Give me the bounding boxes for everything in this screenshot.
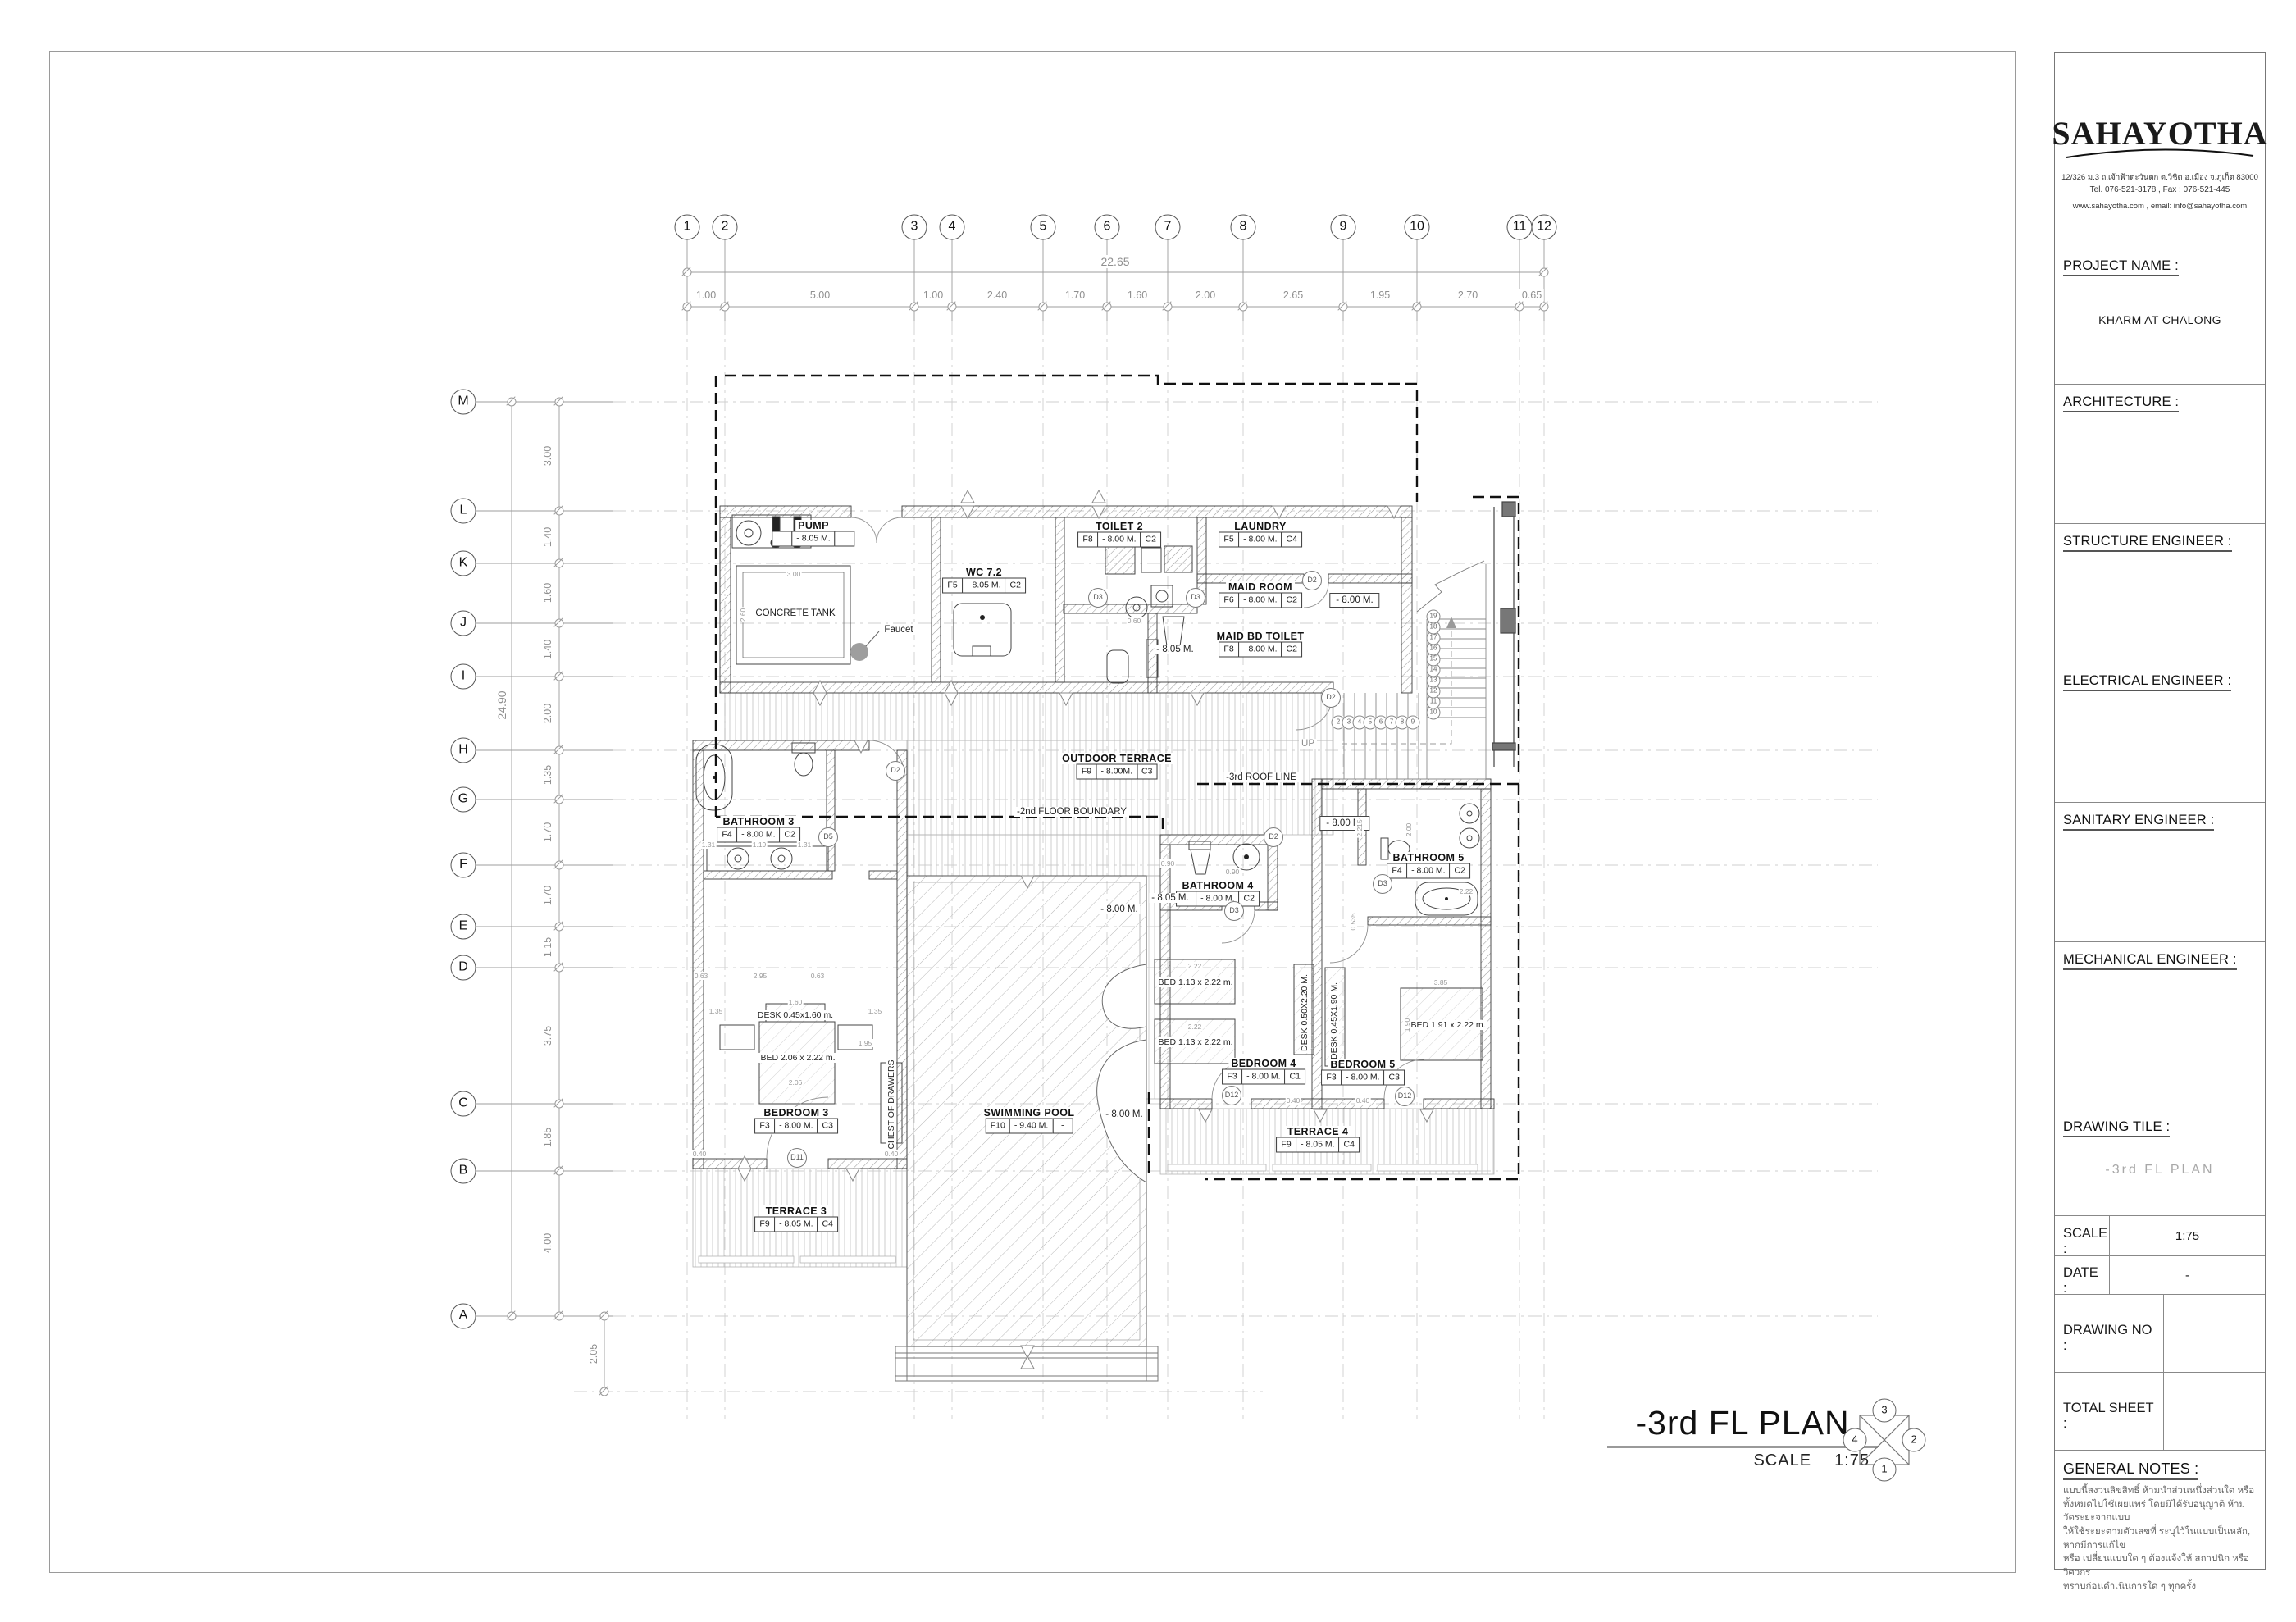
door-tag: D2 <box>1264 827 1283 847</box>
drawing-no-label: DRAWING NO : <box>2055 1295 2163 1372</box>
minor-dim: 1.90 <box>1403 1018 1411 1033</box>
logo-tel: Tel. 076-521-3178 , Fax : 076-521-445 <box>2065 185 2255 198</box>
title-block: SAHAY OTHA 12/326 ม.3 ถ.เจ้าฟ้าตะวันตก ต… <box>2054 52 2266 1570</box>
compass-2: 2 <box>1902 1428 1926 1452</box>
dim-tick <box>555 507 564 516</box>
grid-row-bubble: H <box>451 738 476 763</box>
grid-row-bubble: E <box>451 914 476 940</box>
dim-label: 1.70 <box>542 883 553 908</box>
minor-dim: 2.60 <box>739 608 747 623</box>
room-name: SWIMMING POOL <box>982 1107 1077 1119</box>
dim-tick <box>1515 303 1524 312</box>
minor-dim: 2.22 <box>1187 962 1203 970</box>
drawing-no-value <box>2163 1295 2265 1372</box>
minor-dim: 0.535 <box>1349 912 1357 931</box>
dim-tick <box>508 1312 517 1321</box>
grid-row-bubble: C <box>451 1091 476 1117</box>
room-tag-cell: - 8.00 M. <box>1341 1070 1384 1086</box>
dim-tick <box>1164 303 1173 312</box>
overall-width-dim: 22.65 <box>1098 255 1132 268</box>
room-tag: F8- 8.00 M.C2 <box>1219 642 1302 658</box>
plan-title-block: -3rd FL PLAN SCALE1:75 <box>1607 1404 1878 1470</box>
dim-label: 1.70 <box>542 820 553 845</box>
compass-4: 4 <box>1843 1428 1867 1452</box>
room-tag: F8- 8.00 M.C2 <box>1077 532 1161 548</box>
dim-tick <box>555 861 564 870</box>
dim-tick <box>1039 303 1048 312</box>
room-name: MAID BD TOILET <box>1214 631 1307 642</box>
minor-dim: 1.60 <box>788 998 804 1006</box>
annotation: - 8.05 M. <box>1149 893 1191 903</box>
room-tag-cell: F8 <box>1219 642 1239 658</box>
row-date: DATE : - <box>2055 1256 2265 1295</box>
room-tag-cell <box>772 531 792 547</box>
structure-label: STRUCTURE ENGINEER : <box>2063 534 2232 552</box>
grid-row-bubble: F <box>451 853 476 878</box>
grid-row-bubble: B <box>451 1159 476 1184</box>
grid-row-bubble: K <box>451 551 476 576</box>
scale-label: SCALE : <box>2055 1216 2109 1255</box>
stair-number: 19 <box>1427 610 1441 624</box>
grid-col-bubble: 1 <box>675 215 700 240</box>
room-tag-cell: - 8.00 M. <box>774 1119 818 1134</box>
section-structure: STRUCTURE ENGINEER : <box>2055 524 2265 663</box>
dim-tick <box>555 795 564 804</box>
dim-label: 1.00 <box>921 289 945 301</box>
dim-label: 1.60 <box>542 581 553 605</box>
dim-tick <box>555 559 564 568</box>
annotation: - 8.00 M. <box>1329 593 1379 608</box>
drawing-tile-label: DRAWING TILE : <box>2063 1119 2170 1137</box>
room-tag-cell: C2 <box>1282 642 1302 658</box>
room-tag-cell: F9 <box>1077 764 1097 780</box>
dim-label: 1.40 <box>542 637 553 662</box>
section-drawing-tile: DRAWING TILE : -3rd FL PLAN <box>2055 1109 2265 1216</box>
room-tag-cell: C3 <box>1137 764 1157 780</box>
room-tag-cell: - 8.05 M. <box>962 578 1005 594</box>
general-notes-line: หรือ เปลี่ยนแบบใด ๆ ต้องแจ้งให้ สถาปนิก … <box>2063 1552 2257 1579</box>
room-tag: F9- 8.00M.C3 <box>1077 764 1158 780</box>
dim-tick <box>1103 303 1112 312</box>
room-tag: F3- 8.00 M.C1 <box>1222 1069 1305 1085</box>
dim-label: 0.65 <box>1519 289 1544 301</box>
plan-labels: 123456789101112MLKJIHGFEDCBA1.005.001.00… <box>0 0 2296 1622</box>
room-name: BEDROOM 3 <box>761 1107 831 1119</box>
dim-tick <box>555 964 564 973</box>
furniture-label: DESK 0.45X1.90 M. <box>1329 981 1339 1061</box>
row-total-sheet: TOTAL SHEET : <box>2055 1373 2265 1451</box>
section-general-notes: GENERAL NOTES : แบบนี้สงวนลิขสิทธิ์ ห้าม… <box>2055 1451 2265 1570</box>
room-name: PUMP <box>795 520 831 531</box>
room-tag-cell: - 8.00 M. <box>1241 1069 1285 1085</box>
room-tag-cell: - 8.00 M. <box>1238 532 1282 548</box>
room-name: LAUNDRY <box>1232 521 1288 532</box>
grid-col-bubble: 3 <box>902 215 927 240</box>
room-name: BATHROOM 4 <box>1179 880 1255 891</box>
room-tag: F9- 8.05 M.C4 <box>754 1217 838 1232</box>
room-tag-cell: - 8.00 M. <box>1406 863 1450 879</box>
door-tag: D3 <box>1224 901 1244 921</box>
room-tag-cell: C4 <box>818 1217 838 1232</box>
room-name: WC 7.2 <box>963 567 1004 578</box>
dim-label: 5.00 <box>808 289 832 301</box>
furniture-label: DESK 0.50X2.20 M. <box>1300 973 1310 1053</box>
room-tag: F10- 9.40 M.- <box>986 1119 1073 1134</box>
date-value: - <box>2109 1256 2265 1294</box>
general-notes-line: แบบนี้สงวนลิขสิทธิ์ ห้ามนำส่วนหนึ่งส่วนใ… <box>2063 1484 2257 1498</box>
minor-dim: 0.63 <box>694 972 709 980</box>
minor-dim: 2.22 <box>1187 1023 1203 1031</box>
general-notes-line: ทั้งหมดไปใช้เผยแพร่ โดยมิได้รับอนุญาติ ห… <box>2063 1498 2257 1525</box>
minor-dim: 0.40 <box>884 1150 900 1158</box>
room-tag-cell: F9 <box>1276 1137 1296 1153</box>
room-tag-cell: C1 <box>1285 1069 1305 1085</box>
annotation: Faucet <box>881 625 915 635</box>
minor-dim: 1.95 <box>858 1039 873 1047</box>
minor-dim: 1.35 <box>868 1007 883 1015</box>
grid-col-bubble: 7 <box>1155 215 1181 240</box>
total-sheet-value <box>2163 1373 2265 1450</box>
dim-label: 1.35 <box>542 763 553 787</box>
dim-label: 1.40 <box>542 525 553 549</box>
annotation: -3rd ROOF LINE <box>1223 772 1299 782</box>
dim-tick <box>1239 303 1248 312</box>
room-tag-cell: C2 <box>1450 863 1470 879</box>
section-project-name: PROJECT NAME : KHARM AT CHALONG <box>2055 248 2265 385</box>
furniture-label: CHEST OF DRAWERS <box>886 1058 896 1150</box>
minor-dim: 1.31 <box>701 841 717 849</box>
grid-row-bubble: G <box>451 787 476 813</box>
annotation: -2nd FLOOR BOUNDARY <box>1014 807 1129 817</box>
row-drawing-no: DRAWING NO : <box>2055 1295 2265 1373</box>
date-label: DATE : <box>2055 1256 2109 1294</box>
row-scale: SCALE : 1:75 <box>2055 1216 2265 1256</box>
dim-tick <box>555 619 564 628</box>
grid-col-bubble: 2 <box>713 215 738 240</box>
dim-tick <box>600 1387 609 1396</box>
minor-dim: 2.06 <box>788 1078 804 1087</box>
minor-dim: 2.00 <box>1405 822 1413 838</box>
minor-dim: 0.60 <box>1127 617 1142 625</box>
dim-tick <box>910 303 919 312</box>
minor-dim: 1.31 <box>797 841 813 849</box>
logo-web: www.sahayotha.com , email: info@sahayoth… <box>2055 202 2265 211</box>
company-logo: SAHAY OTHA 12/326 ม.3 ถ.เจ้าฟ้าตะวันตก ต… <box>2055 53 2265 248</box>
room-tag: F5- 8.05 M.C2 <box>942 578 1026 594</box>
minor-dim: 2.95 <box>753 972 768 980</box>
dim-label: 2.40 <box>985 289 1009 301</box>
door-tag: D3 <box>1088 588 1108 608</box>
dim-tick <box>555 672 564 681</box>
room-name: BATHROOM 3 <box>720 816 796 827</box>
dim-tick <box>555 1100 564 1109</box>
furniture-label: BED 1.91 x 2.22 m. <box>1409 1020 1487 1030</box>
general-notes-label: GENERAL NOTES : <box>2063 1460 2198 1480</box>
room-tag-cell: F10 <box>986 1119 1010 1134</box>
dim-tick <box>555 1312 564 1321</box>
door-tag: D2 <box>886 761 905 781</box>
overall-height-dim: 24.90 <box>495 688 508 722</box>
dim-label: 1.95 <box>1368 289 1392 301</box>
section-mechanical: MECHANICAL ENGINEER : <box>2055 942 2265 1109</box>
grid-row-bubble: I <box>451 664 476 690</box>
annotation: - 8.00 M. <box>1098 904 1140 914</box>
room-name: MAID ROOM <box>1226 581 1295 593</box>
furniture-label: BED 1.13 x 2.22 m. <box>1156 977 1234 987</box>
room-tag-cell: - <box>1052 1119 1073 1134</box>
dim-label: 2.00 <box>1193 289 1218 301</box>
dim-tick <box>1413 303 1422 312</box>
compass-3: 3 <box>1873 1399 1897 1423</box>
total-sheet-label: TOTAL SHEET : <box>2055 1373 2163 1450</box>
dim-label: 2.00 <box>542 701 553 726</box>
room-tag: - 8.05 M. <box>772 531 854 547</box>
stair-number: 9 <box>1406 716 1420 730</box>
grid-col-bubble: 12 <box>1532 215 1557 240</box>
door-tag: D12 <box>1395 1087 1414 1106</box>
room-tag: F4- 8.00 M.C2 <box>1387 863 1470 879</box>
minor-dim: 0.63 <box>810 972 826 980</box>
room-tag: F5- 8.00 M.C4 <box>1219 532 1302 548</box>
room-tag: F3- 8.00 M.C3 <box>754 1119 838 1134</box>
room-tag-cell: F3 <box>754 1119 775 1134</box>
annotation: - 8.00 M. <box>1103 1109 1145 1119</box>
furniture-label: BED 1.13 x 2.22 m. <box>1156 1037 1234 1047</box>
grid-row-bubble: D <box>451 955 476 981</box>
room-tag-cell: C4 <box>1339 1137 1360 1153</box>
sanitary-label: SANITARY ENGINEER : <box>2063 813 2214 831</box>
dim-tick <box>1540 268 1549 277</box>
room-tag: F3- 8.00 M.C3 <box>1321 1070 1405 1086</box>
dim-label: 1.85 <box>542 1125 553 1150</box>
room-tag: F9- 8.05 M.C4 <box>1276 1137 1360 1153</box>
dim-label: 1.60 <box>1125 289 1150 301</box>
project-name-label: PROJECT NAME : <box>2063 258 2179 276</box>
room-tag-cell: F5 <box>942 578 963 594</box>
room-tag-cell: - 8.00M. <box>1096 764 1138 780</box>
minor-dim: 0.40 <box>1355 1096 1371 1105</box>
room-tag-cell: C4 <box>1282 532 1302 548</box>
room-tag-cell: - 8.00 M. <box>1238 593 1282 608</box>
dim-label: 3.00 <box>542 444 553 468</box>
dim-tick <box>683 268 692 277</box>
minor-dim: 3.00 <box>786 570 802 578</box>
dim-label: 1.70 <box>1063 289 1087 301</box>
section-sanitary: SANITARY ENGINEER : <box>2055 803 2265 942</box>
plan-title: -3rd FL PLAN <box>1607 1404 1878 1448</box>
dim-label: 1.00 <box>694 289 718 301</box>
grid-row-bubble: A <box>451 1304 476 1329</box>
room-name: OUTDOOR TERRACE <box>1059 753 1174 764</box>
minor-dim: 2.215 <box>1355 818 1364 837</box>
furniture-label: DESK 0.45x1.60 m. <box>756 1010 835 1020</box>
architecture-label: ARCHITECTURE : <box>2063 394 2179 412</box>
mechanical-label: MECHANICAL ENGINEER : <box>2063 952 2237 970</box>
room-tag-cell: - 8.00 M. <box>1238 642 1282 658</box>
room-tag-cell: - 8.00 M. <box>1097 532 1141 548</box>
grid-row-bubble: L <box>451 499 476 524</box>
room-tag-cell: F4 <box>717 827 737 843</box>
door-tag: D3 <box>1373 874 1392 894</box>
general-notes-line: ทราบก่อนดำเนินการใด ๆ ทุกครั้ง <box>2063 1580 2257 1594</box>
room-tag: F6- 8.00 M.C2 <box>1219 593 1302 608</box>
extra-dim: 2.05 <box>588 1342 599 1366</box>
grid-row-bubble: J <box>451 611 476 636</box>
dim-label: 4.00 <box>542 1231 553 1255</box>
general-notes-text: แบบนี้สงวนลิขสิทธิ์ ห้ามนำส่วนหนึ่งส่วนใ… <box>2063 1484 2257 1593</box>
general-notes-line: ให้ใช้ระยะตามตัวเลขที่ ระบุไว้ในแบบเป็นห… <box>2063 1525 2257 1552</box>
dim-tick <box>508 398 517 407</box>
plan-scale: SCALE1:75 <box>1607 1451 1878 1470</box>
room-tag-cell: F5 <box>1219 532 1239 548</box>
room-tag-cell: - 8.05 M. <box>774 1217 818 1232</box>
annotation: UP <box>1299 739 1317 749</box>
room-tag-cell: F9 <box>754 1217 775 1232</box>
grid-col-bubble: 9 <box>1331 215 1356 240</box>
room-tag-cell: - 8.05 M. <box>1296 1137 1339 1153</box>
minor-dim: 0.40 <box>692 1150 708 1158</box>
room-tag-cell: C3 <box>1384 1070 1405 1086</box>
annotation: CONCRETE TANK <box>753 608 837 618</box>
logo-address: 12/326 ม.3 ถ.เจ้าฟ้าตะวันตก ต.วิชิต อ.เม… <box>2055 171 2265 184</box>
section-electrical: ELECTRICAL ENGINEER : <box>2055 663 2265 803</box>
electrical-label: ELECTRICAL ENGINEER : <box>2063 673 2231 691</box>
room-name: TERRACE 3 <box>763 1205 829 1217</box>
room-tag-cell: C3 <box>818 1119 838 1134</box>
compass-1: 1 <box>1873 1458 1897 1482</box>
annotation: - 8.05 M. <box>1154 645 1196 654</box>
logo-text-right: OTHA <box>2168 119 2268 148</box>
room-tag-cell: F3 <box>1222 1069 1242 1085</box>
grid-col-bubble: 10 <box>1405 215 1430 240</box>
drawing-tile-value: -3rd FL PLAN <box>2063 1163 2257 1178</box>
dim-tick <box>600 1312 609 1321</box>
room-tag-cell: - 9.40 M. <box>1009 1119 1053 1134</box>
dim-label: 2.65 <box>1281 289 1305 301</box>
room-tag-cell: F4 <box>1387 863 1407 879</box>
dim-tick <box>555 923 564 932</box>
grid-col-bubble: 11 <box>1507 215 1533 240</box>
grid-col-bubble: 4 <box>940 215 965 240</box>
room-tag-cell: F8 <box>1077 532 1098 548</box>
door-tag: D2 <box>1321 688 1341 708</box>
grid-row-bubble: M <box>451 390 476 415</box>
dim-tick <box>683 303 692 312</box>
room-tag-cell: C2 <box>1005 578 1026 594</box>
door-tag: D12 <box>1222 1086 1241 1105</box>
room-name: TOILET 2 <box>1093 521 1146 532</box>
room-name: TERRACE 4 <box>1285 1126 1351 1137</box>
furniture-label: BED 2.06 x 2.22 m. <box>758 1053 836 1063</box>
dim-tick <box>721 303 730 312</box>
room-tag-cell: - 8.05 M. <box>791 531 835 547</box>
minor-dim: 0.40 <box>1286 1096 1301 1105</box>
dim-tick <box>948 303 957 312</box>
door-tag: D11 <box>787 1148 807 1168</box>
plan-scale-label: SCALE <box>1753 1451 1811 1469</box>
dim-label: 2.70 <box>1455 289 1480 301</box>
minor-dim: 3.85 <box>1433 978 1449 986</box>
minor-dim: 0.90 <box>1225 868 1241 876</box>
minor-dim: 0.90 <box>1160 859 1176 868</box>
drawing-sheet: 123456789101112MLKJIHGFEDCBA1.005.001.00… <box>0 0 2296 1622</box>
grid-col-bubble: 6 <box>1095 215 1120 240</box>
room-tag-cell: C2 <box>1282 593 1302 608</box>
dim-label: 1.15 <box>542 935 553 959</box>
room-name: BATHROOM 5 <box>1390 852 1466 863</box>
minor-dim: 1.35 <box>708 1007 724 1015</box>
door-tag: D3 <box>1186 588 1205 608</box>
door-tag: D2 <box>1302 571 1322 590</box>
dim-tick <box>1540 303 1549 312</box>
minor-dim: 2.22 <box>1459 887 1474 895</box>
project-name-value: KHARM AT CHALONG <box>2063 313 2257 326</box>
room-tag-cell: F6 <box>1219 593 1239 608</box>
dim-tick <box>555 746 564 755</box>
room-name: BEDROOM 4 <box>1228 1058 1298 1069</box>
logo-text-left: SAHAY <box>2052 119 2167 148</box>
room-tag-cell: C2 <box>1141 532 1161 548</box>
section-architecture: ARCHITECTURE : <box>2055 385 2265 524</box>
scale-value: 1:75 <box>2109 1216 2265 1255</box>
room-tag-cell: F3 <box>1321 1070 1342 1086</box>
dim-tick <box>555 398 564 407</box>
grid-col-bubble: 5 <box>1031 215 1056 240</box>
dim-tick <box>555 1167 564 1176</box>
dim-label: 3.75 <box>542 1023 553 1048</box>
key-plan-compass: 3 2 1 4 <box>1838 1394 1930 1486</box>
door-tag: D5 <box>818 827 838 847</box>
room-tag-cell <box>835 531 855 547</box>
minor-dim: 1.19 <box>752 841 768 849</box>
dim-tick <box>1339 303 1348 312</box>
grid-col-bubble: 8 <box>1231 215 1256 240</box>
